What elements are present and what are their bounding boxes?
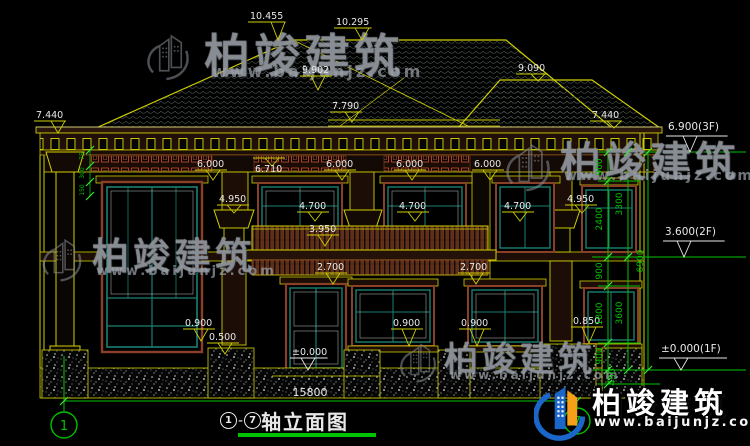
dim-tick — [86, 178, 94, 186]
dim-tick — [604, 177, 612, 185]
dim-marker-arrow — [402, 329, 416, 346]
dim-marker-arrow — [677, 241, 691, 257]
dim-marker-label: 7.440 — [592, 110, 619, 121]
dim-tick — [644, 148, 652, 156]
chain-dim-label: 2400 — [595, 207, 605, 230]
dim-marker-label: 6.000 — [326, 159, 353, 170]
dim-marker-arrow — [575, 205, 589, 213]
dim-marker-arrow — [607, 121, 621, 128]
dim-marker-label: 4.700 — [504, 201, 531, 212]
dim-tick — [604, 339, 612, 347]
dim-marker-arrow — [271, 22, 285, 40]
dim-marker-arrow — [355, 28, 369, 40]
dim-tick — [86, 146, 94, 154]
chain-dim-label: 6900 — [636, 249, 646, 272]
title-axis-bubble-end: 7 — [244, 412, 261, 429]
dim-marker-arrow — [531, 74, 545, 81]
dim-tick — [604, 148, 612, 156]
dim-tick — [60, 397, 68, 405]
dim-marker-label: 6.710 — [255, 164, 282, 175]
dim-marker-label: 9.090 — [518, 63, 545, 74]
dim-marker-label: 4.950 — [219, 194, 246, 205]
dim-marker-label: 3.950 — [309, 224, 336, 235]
dim-tick — [624, 148, 632, 156]
detail-dim-label: 300 — [79, 167, 86, 179]
dim-marker-arrow — [345, 112, 359, 122]
dim-marker-arrow — [674, 358, 688, 370]
dim-tick — [644, 366, 652, 374]
dim-marker-arrow — [483, 170, 497, 180]
dim-marker-arrow — [311, 76, 325, 90]
dim-marker-arrow — [470, 329, 484, 346]
dim-marker-arrow — [469, 273, 483, 284]
dim-marker-label: 6.000 — [474, 159, 501, 170]
chain-dim-label: 1800 — [595, 302, 605, 325]
chain-dim-label: 3300 — [615, 192, 625, 215]
title-axis-bubble-start: 1 — [220, 412, 237, 429]
dim-marker-arrow — [405, 170, 419, 180]
dim-marker-arrow — [326, 273, 340, 284]
dim-marker-label: 0.900 — [461, 318, 488, 329]
dim-marker-label: 3.600(2F) — [665, 226, 716, 238]
detail-dim-label: 75 — [79, 152, 86, 160]
dim-tick — [604, 282, 612, 290]
chain-dim-label: 900 — [595, 158, 605, 175]
dim-marker-label: 4.700 — [399, 201, 426, 212]
baijun-logo-icon — [534, 380, 588, 444]
dim-marker-arrow — [683, 136, 697, 152]
dim-marker-arrow — [194, 329, 208, 341]
dim-marker-label: 4.950 — [567, 194, 594, 205]
dim-tick — [624, 253, 632, 261]
dim-marker-label: 2.700 — [317, 262, 344, 273]
dim-marker-arrow — [206, 170, 220, 180]
dim-tick — [86, 192, 94, 200]
chain-dim-label: 900 — [595, 262, 605, 279]
dim-marker-label: 10.455 — [250, 11, 283, 22]
baijun-logo: 柏竣建筑 www.baijunjz.com — [534, 378, 750, 446]
dim-marker-label: 6.000 — [197, 159, 224, 170]
dim-marker-label: 2.700 — [460, 262, 487, 273]
dim-marker-arrow — [227, 205, 241, 213]
dim-tick — [604, 253, 612, 261]
logo-url-text: www.baijunjz.com — [594, 415, 750, 430]
dim-marker-arrow — [335, 170, 349, 180]
dim-marker-label: 9.902 — [302, 65, 329, 76]
dim-marker-label: 7.790 — [332, 101, 359, 112]
chain-dim-label: 900 — [595, 347, 605, 364]
dim-marker-label: 6.900(3F) — [668, 121, 719, 133]
title-dash: - — [238, 413, 243, 429]
detail-dim-label: 150 — [79, 184, 86, 196]
dim-marker-arrow — [582, 327, 596, 343]
dim-marker-label: 0.500 — [209, 332, 236, 343]
dim-marker-label: 4.700 — [299, 201, 326, 212]
title-underline — [238, 433, 376, 437]
dim-marker-arrow — [301, 358, 315, 370]
dim-marker-arrow — [318, 235, 332, 246]
dim-marker-label: 10.295 — [336, 17, 369, 28]
dim-tick — [624, 366, 632, 374]
dim-marker-arrow — [513, 212, 527, 221]
dim-marker-arrow — [408, 212, 422, 221]
dim-marker-arrow — [51, 121, 65, 133]
title-text: 轴立面图 — [261, 410, 349, 434]
dim-marker-arrow — [218, 343, 232, 354]
cad-elevation-screenshot: 1 7 15800 柏竣建筑 www.baijunjz.com 柏竣建筑 www… — [0, 0, 750, 446]
dim-marker-label: ±0.000(1F) — [661, 343, 721, 355]
chain-dim-label: 3600 — [615, 301, 625, 324]
dim-marker-label: 7.440 — [36, 110, 63, 121]
dim-marker-arrow — [308, 212, 322, 221]
dim-marker-label: 6.000 — [396, 159, 423, 170]
drawing-title: 1-7轴立面图 — [220, 406, 349, 435]
dim-marker-label: ±0.000 — [292, 347, 327, 358]
dim-tick — [86, 162, 94, 170]
dim-marker-label: 0.900 — [393, 318, 420, 329]
dim-marker-label: 0.900 — [185, 318, 212, 329]
